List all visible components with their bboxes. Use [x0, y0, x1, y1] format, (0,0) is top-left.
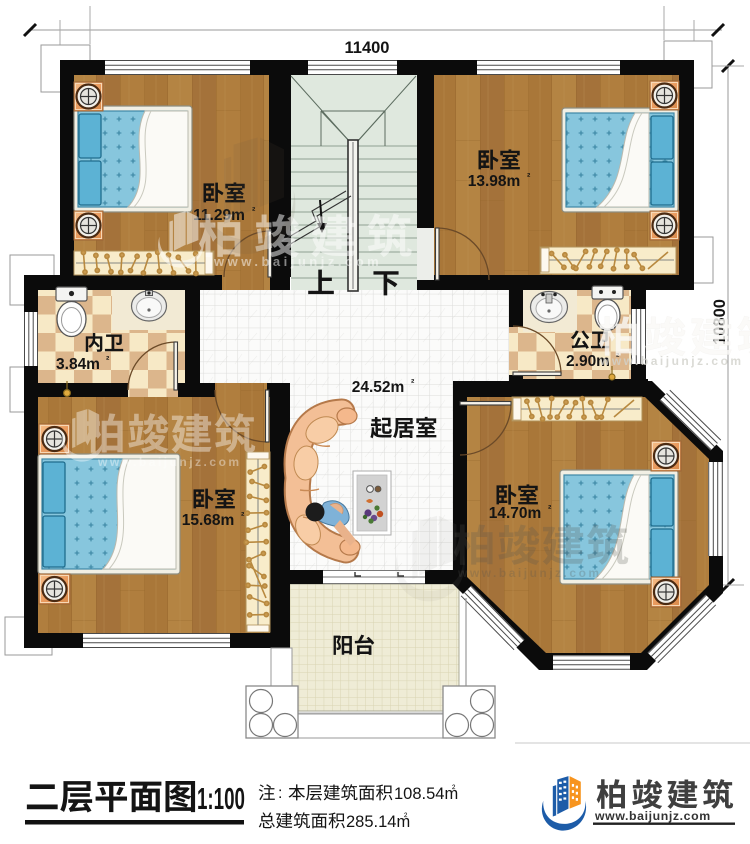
svg-text:14.70m: 14.70m: [489, 505, 542, 522]
svg-text:11400: 11400: [345, 39, 390, 57]
svg-text:108.54m: 108.54m: [394, 785, 458, 803]
svg-text:www.baijunjz.com: www.baijunjz.com: [599, 354, 744, 368]
svg-text:www.baijunjz.com: www.baijunjz.com: [97, 455, 242, 469]
svg-text:15.68m: 15.68m: [182, 512, 235, 529]
svg-text:1:100: 1:100: [197, 781, 245, 816]
svg-text:24.52m: 24.52m: [352, 379, 405, 396]
svg-text::: :: [278, 785, 282, 802]
svg-text:www.baijunjz.com: www.baijunjz.com: [457, 566, 602, 580]
svg-text:285.14m: 285.14m: [346, 813, 410, 831]
svg-text:13.98m: 13.98m: [468, 173, 521, 190]
svg-text:3.84m: 3.84m: [56, 356, 100, 373]
svg-text:www.baijunjz.com: www.baijunjz.com: [594, 809, 711, 823]
svg-text:www.baijunjz.com: www.baijunjz.com: [213, 254, 382, 269]
